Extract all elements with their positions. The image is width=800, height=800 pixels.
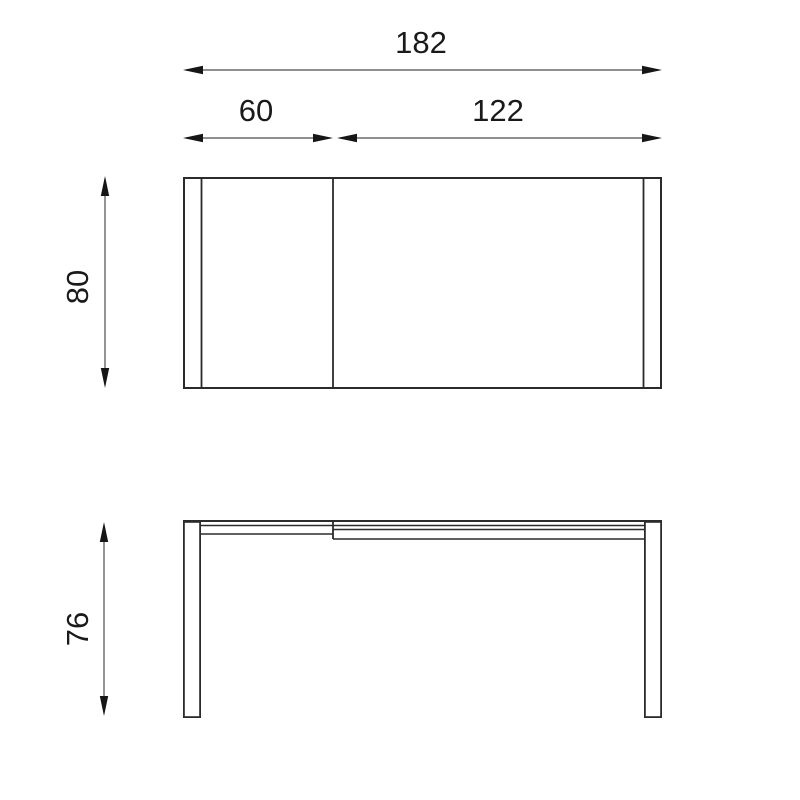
arrowhead-right-icon [642, 66, 662, 74]
arrowhead-down-icon [101, 368, 109, 388]
arrowhead-left-icon [183, 66, 203, 74]
dim-depth: 80 [60, 176, 109, 388]
drawing-canvas: 182 60 122 80 76 [0, 0, 800, 800]
dim-height: 76 [60, 522, 108, 716]
arrowhead-up-icon [101, 176, 109, 196]
dim-main-width: 122 [337, 93, 662, 142]
arrowhead-right-icon [313, 134, 333, 142]
dim-total-width: 182 [183, 25, 662, 74]
right-leg [645, 522, 661, 717]
arrowhead-left-icon [337, 134, 357, 142]
front-view [183, 521, 662, 717]
dim-height-label: 76 [60, 612, 95, 646]
dim-main-width-label: 122 [472, 93, 524, 128]
technical-drawing: 182 60 122 80 76 [0, 0, 800, 800]
dim-extension-width: 60 [183, 93, 333, 142]
arrowhead-up-icon [100, 522, 108, 542]
arrowhead-right-icon [642, 134, 662, 142]
arrowhead-left-icon [183, 134, 203, 142]
arrowhead-down-icon [100, 696, 108, 716]
dim-depth-label: 80 [60, 270, 95, 304]
dim-total-width-label: 182 [395, 25, 447, 60]
left-leg [184, 522, 200, 717]
tabletop-outline [184, 178, 661, 388]
top-view [184, 178, 661, 388]
dim-extension-width-label: 60 [239, 93, 273, 128]
